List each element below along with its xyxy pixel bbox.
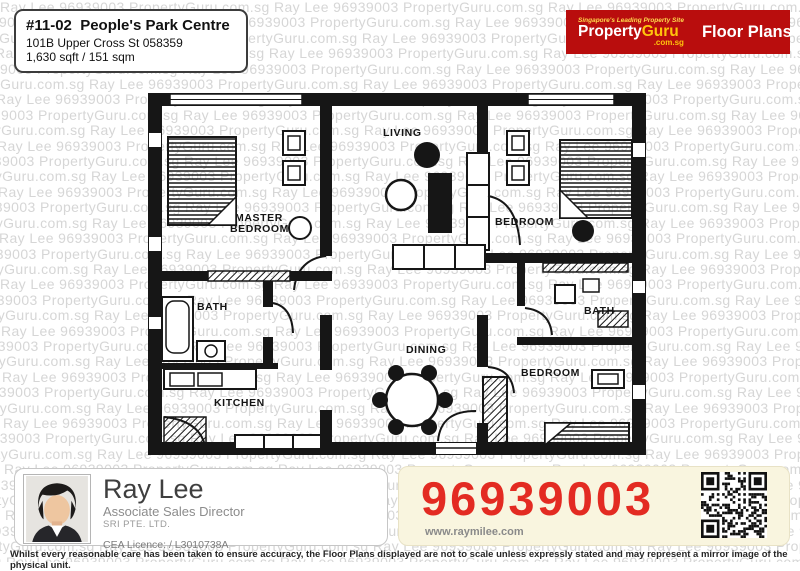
side-table bbox=[289, 217, 311, 239]
dining-table bbox=[372, 365, 453, 435]
brand-domain: .com.sg bbox=[578, 39, 684, 47]
listing-address: 101B Upper Cross St 058359 bbox=[26, 36, 236, 50]
room-label-bedroom-bottom: BEDROOM bbox=[521, 367, 580, 379]
plant bbox=[414, 142, 440, 168]
disclaimer-text: Whilst every reasonable care has been ta… bbox=[10, 549, 794, 571]
agent-text: Ray Lee Associate Sales Director SRI PTE… bbox=[103, 474, 245, 540]
coffee-table bbox=[386, 180, 416, 210]
phone-number: 96939003 bbox=[421, 471, 654, 526]
bathtub bbox=[162, 297, 193, 361]
brand-product: Floor Plans bbox=[702, 23, 792, 42]
planter-ledge bbox=[543, 263, 628, 272]
room-label-bath-left: BATH bbox=[197, 301, 228, 313]
contact-card: 96939003 www.raymilee.com bbox=[398, 466, 790, 546]
agent-title: Associate Sales Director bbox=[103, 504, 245, 519]
bedroom-stool bbox=[572, 220, 594, 242]
bath-window-ledge bbox=[208, 271, 290, 281]
brand-name-left: Property bbox=[578, 23, 642, 40]
master-bed bbox=[168, 137, 236, 225]
room-label-bath-right: BATH bbox=[584, 305, 615, 317]
room-label-kitchen: KITCHEN bbox=[214, 397, 265, 409]
kitchen-counter bbox=[164, 369, 256, 389]
balcony-door-arc bbox=[438, 411, 476, 441]
toilet bbox=[197, 341, 225, 361]
bedroom3-window-unit bbox=[592, 370, 624, 388]
listing-info-box: #11-02 People's Park Centre 101B Upper C… bbox=[14, 9, 248, 73]
brand-text: Singapore's Leading Property Site Proper… bbox=[578, 17, 684, 47]
master-closet bbox=[283, 131, 305, 185]
room-label-dining: DINING bbox=[406, 344, 446, 356]
agent-photo bbox=[23, 474, 91, 544]
listing-area: 1,630 sqft / 151 sqm bbox=[26, 50, 236, 64]
floor-plan: MASTER BEDROOM LIVING BEDROOM BATH KITCH… bbox=[140, 85, 660, 465]
kitchen-island bbox=[235, 435, 321, 449]
tv-console bbox=[428, 173, 452, 233]
kitchen-corner bbox=[164, 417, 206, 453]
bedroom3-wardrobe bbox=[483, 377, 507, 453]
propertyguru-logo: Singapore's Leading Property Site Proper… bbox=[566, 10, 790, 54]
room-label-master-2: BEDROOM bbox=[230, 223, 289, 235]
qr-code bbox=[701, 472, 767, 538]
bath2-fixtures bbox=[555, 279, 628, 327]
bedroom-bed bbox=[560, 140, 632, 218]
website-url: www.raymilee.com bbox=[425, 526, 524, 538]
agent-company: SRI PTE. LTD. bbox=[103, 519, 245, 530]
listing-title: #11-02 People's Park Centre bbox=[26, 17, 236, 34]
bedroom3-bed bbox=[545, 423, 629, 453]
bath-door-arc bbox=[273, 303, 293, 333]
bath2-door-arc bbox=[525, 308, 552, 335]
bedroom-closet bbox=[507, 131, 529, 185]
room-label-bedroom-right: BEDROOM bbox=[495, 216, 554, 228]
agent-card: Ray Lee Associate Sales Director SRI PTE… bbox=[14, 468, 388, 546]
room-label-living: LIVING bbox=[383, 127, 422, 139]
brand-name: PropertyGuru bbox=[578, 24, 684, 39]
agent-name: Ray Lee bbox=[103, 475, 245, 503]
agent-photo-image bbox=[25, 476, 89, 542]
